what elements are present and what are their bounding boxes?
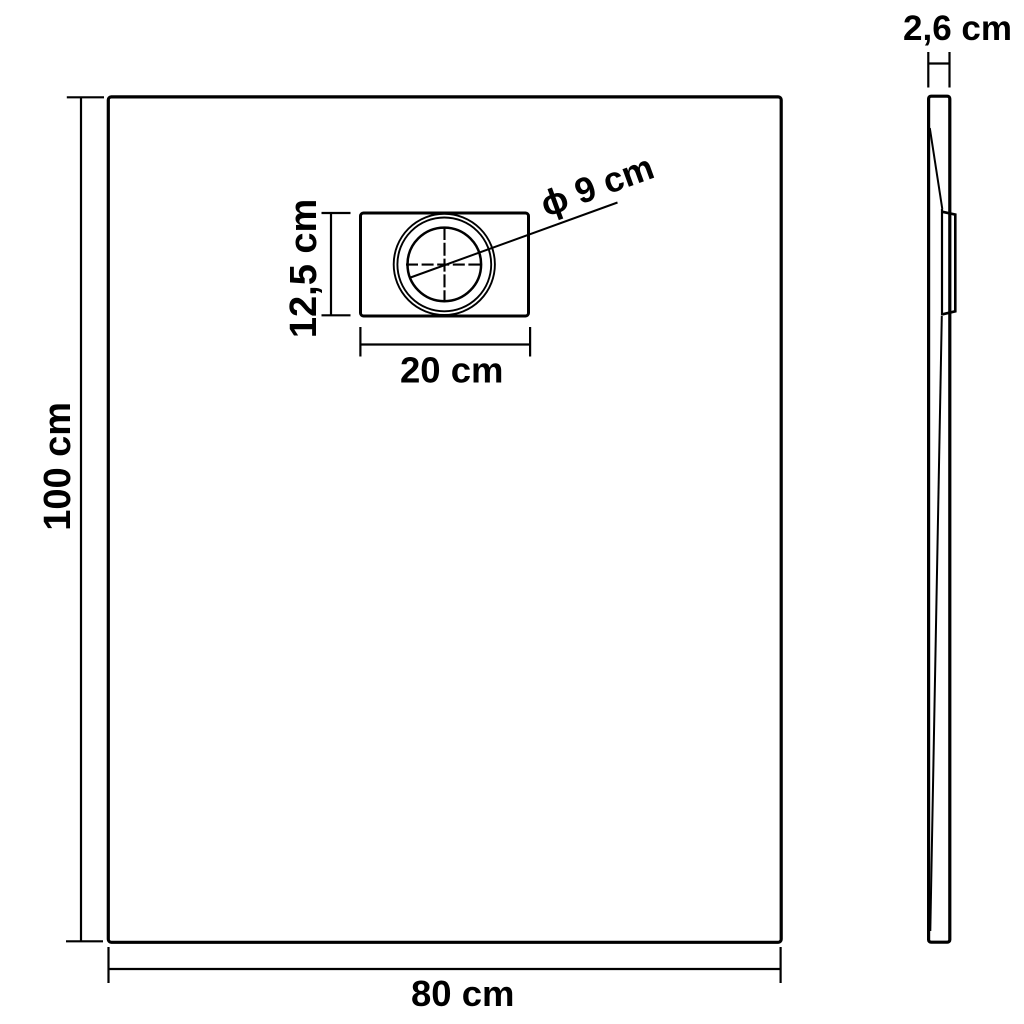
svg-text:12,5 cm: 12,5 cm [283, 199, 325, 338]
svg-text:100 cm: 100 cm [37, 402, 79, 531]
svg-text:2,6 cm: 2,6 cm [903, 9, 1012, 48]
svg-text:80 cm: 80 cm [411, 973, 515, 1014]
svg-text:20 cm: 20 cm [400, 350, 504, 391]
